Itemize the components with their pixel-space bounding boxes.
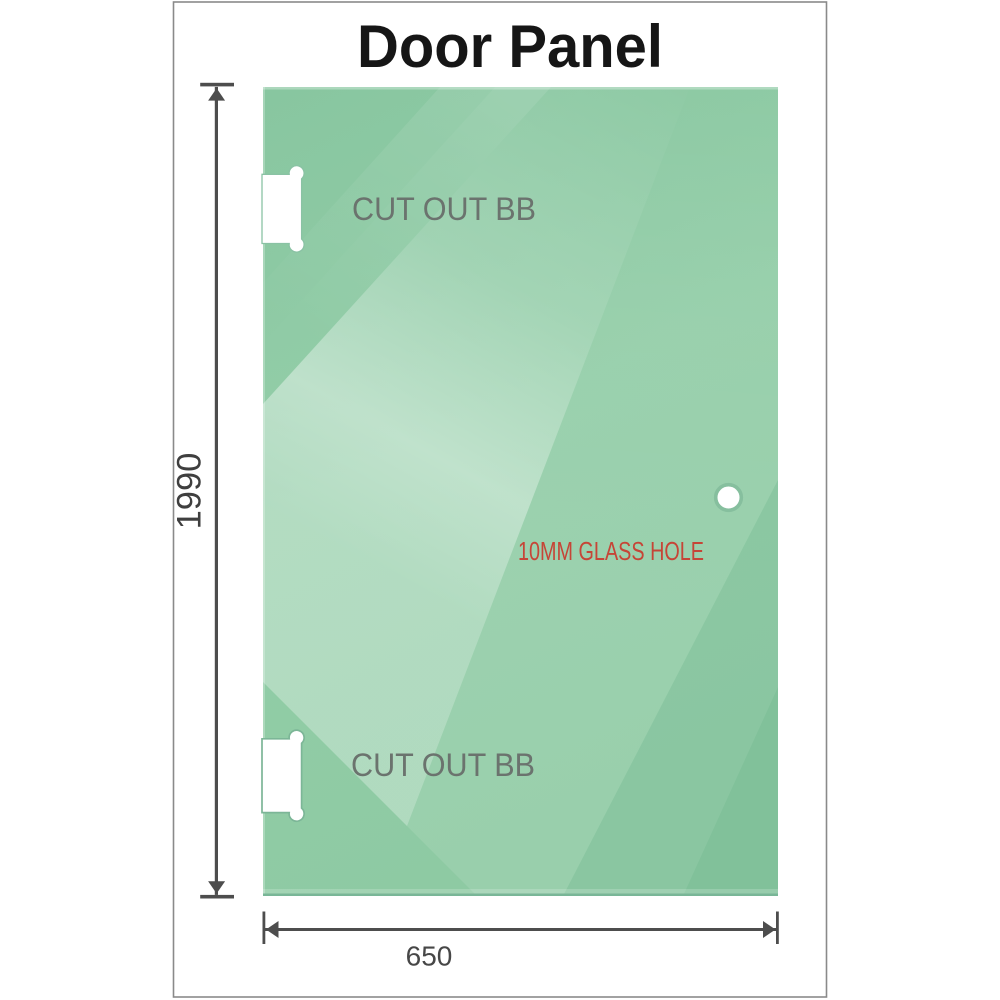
svg-text:650: 650: [406, 941, 453, 972]
svg-text:1990: 1990: [171, 453, 209, 530]
svg-text:Door Panel: Door Panel: [357, 13, 663, 80]
svg-text:CUT OUT BB: CUT OUT BB: [351, 747, 535, 783]
svg-text:CUT OUT BB: CUT OUT BB: [352, 191, 536, 227]
svg-text:10MM GLASS HOLE: 10MM GLASS HOLE: [518, 536, 704, 566]
